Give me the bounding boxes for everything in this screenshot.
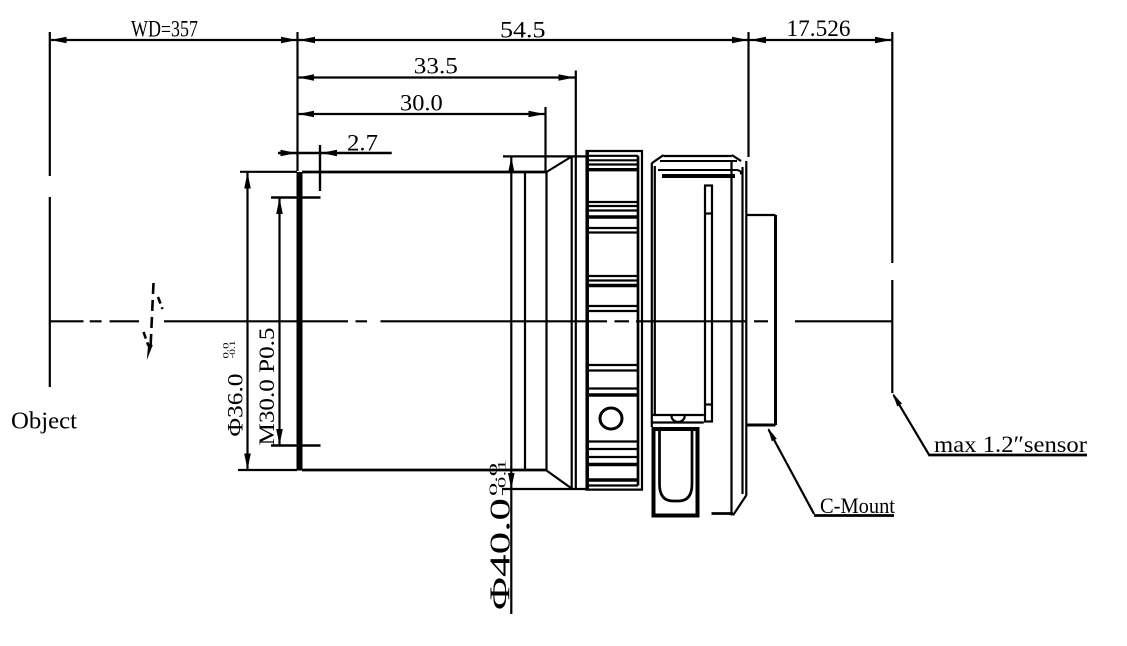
svg-text:WD=357: WD=357	[131, 17, 198, 42]
svg-text:M30.0 P0.5: M30.0 P0.5	[254, 328, 279, 446]
svg-text:max 1.2″sensor: max 1.2″sensor	[934, 432, 1087, 457]
svg-text:-0.1: -0.1	[495, 459, 509, 496]
svg-text:30.0: 30.0	[400, 91, 443, 116]
svg-text:2.7: 2.7	[347, 131, 378, 156]
svg-text:33.5: 33.5	[414, 54, 458, 79]
svg-text:17.526: 17.526	[787, 16, 851, 41]
svg-text:C-Mount: C-Mount	[820, 493, 895, 518]
svg-text:-0.1: -0.1	[227, 341, 237, 359]
svg-text:Φ40.0: Φ40.0	[485, 498, 517, 610]
svg-text:Φ36.0: Φ36.0	[223, 374, 248, 437]
svg-text:Object: Object	[11, 408, 77, 435]
svg-text:54.5: 54.5	[500, 18, 546, 43]
